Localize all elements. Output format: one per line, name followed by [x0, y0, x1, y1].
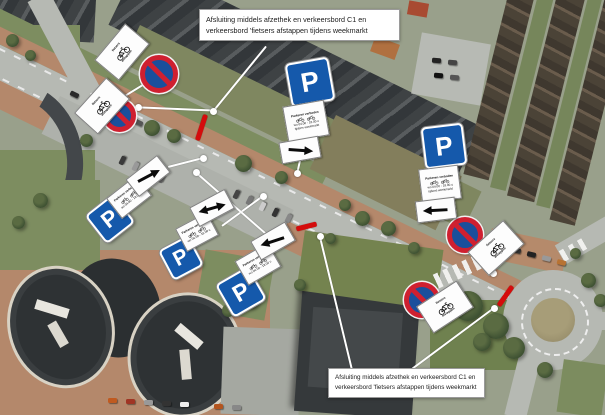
- no-parking-slash: [146, 61, 172, 87]
- leader-dot: [193, 169, 200, 176]
- leader-dot: [210, 108, 217, 115]
- arrow-sign: [415, 197, 457, 224]
- left-arrow-icon: [421, 204, 452, 216]
- parking-sign: P: [285, 57, 336, 108]
- callout-top: Afsluiting middels afzethek en verkeersb…: [199, 9, 400, 41]
- callout-top-text: Afsluiting middels afzethek en verkeersb…: [206, 15, 368, 35]
- both-arrow-icon: [196, 199, 228, 217]
- leader-line: [138, 106, 211, 111]
- sign-info-board: Parkeren verbodenwo 04.00 - 18.00 utijde…: [282, 100, 330, 143]
- no-parking-sign: [140, 55, 178, 93]
- leader-dot: [135, 104, 142, 111]
- closure-marker: [295, 221, 317, 231]
- left-arrow-icon: [257, 231, 289, 250]
- right-arrow-icon: [285, 144, 316, 157]
- no-parking-slash: [453, 223, 477, 247]
- arrow-sign: [278, 136, 321, 165]
- leader-dot: [491, 305, 498, 312]
- closure-marker: [496, 285, 514, 308]
- parking-sign: P: [421, 123, 468, 170]
- annotation-layer: fietsersafstappenfietsersafstappenfietse…: [0, 0, 605, 415]
- aerial-map: fietsersafstappenfietsersafstappenfietse…: [0, 0, 605, 415]
- callout-bottom-text: Afsluiting middels afzethek en verkeersb…: [335, 374, 477, 391]
- leader-line: [319, 236, 353, 370]
- closure-marker: [194, 113, 207, 140]
- leader-dot: [317, 233, 324, 240]
- leader-line: [168, 157, 204, 168]
- leader-dot: [294, 170, 301, 177]
- leader-dot: [260, 193, 267, 200]
- leader-line: [212, 45, 267, 112]
- right-arrow-icon: [132, 164, 163, 187]
- callout-bottom: Afsluiting middels afzethek en verkeersb…: [328, 368, 485, 398]
- info-board-text: tijdens weekmarkt: [428, 187, 453, 194]
- leader-dot: [200, 155, 207, 162]
